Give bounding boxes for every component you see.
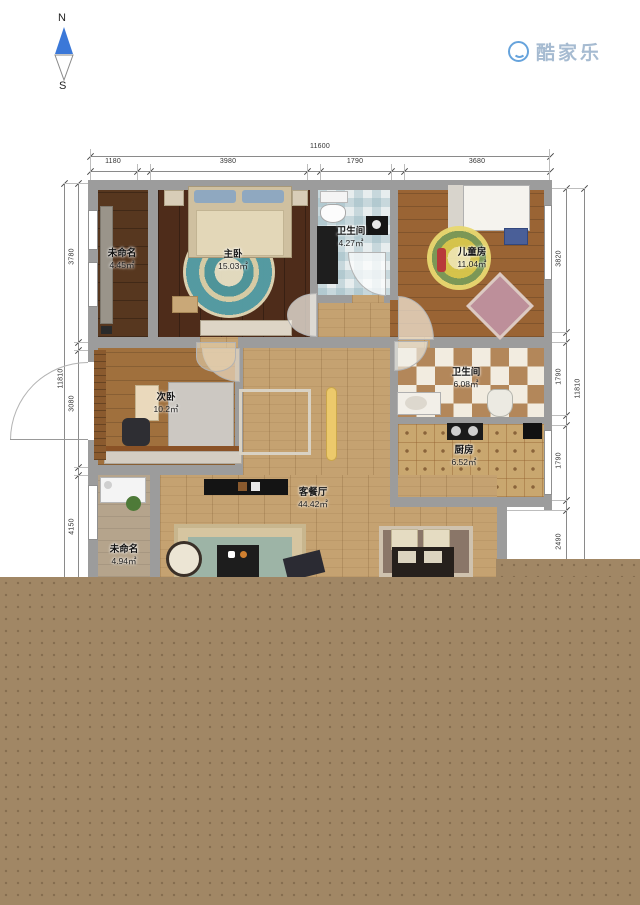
master-dresser <box>200 320 292 336</box>
kids-dresser <box>504 228 528 245</box>
place-setting <box>398 551 416 563</box>
dim-right-seg3: 1790 <box>556 439 563 483</box>
tv-decor <box>251 482 260 491</box>
toilet <box>487 389 513 417</box>
room-label-kitchen: 厨房 6.52㎡ <box>434 445 494 468</box>
corridor-cabinet <box>239 389 311 455</box>
armchair <box>166 541 202 577</box>
kujiale-logo-text: 酷家乐 <box>536 38 602 65</box>
compass-needle-icon <box>50 26 78 82</box>
kitchen-appliance <box>523 423 542 439</box>
master-stool <box>172 296 198 313</box>
wall-secondbed-bottom <box>88 465 243 475</box>
toilet <box>320 204 346 223</box>
nightstand <box>292 190 308 206</box>
room-label-bath-top: 卫生间 4.27㎡ <box>321 226 381 249</box>
dim-top-total: 11600 <box>298 143 342 150</box>
dim-top-seg1: 1180 <box>91 158 135 165</box>
bath-shelf <box>320 191 348 203</box>
place-setting <box>424 551 442 563</box>
appliance-knob <box>104 481 112 489</box>
table-item <box>228 551 235 558</box>
dim-line-right-total <box>584 188 585 559</box>
dim-right-seg2: 1790 <box>556 355 563 399</box>
bath1-door-opening <box>352 295 384 303</box>
entry-door-line <box>10 439 88 440</box>
shelf-item <box>101 326 112 334</box>
wall-middle-horizontal <box>88 337 552 348</box>
dim-line-top-total <box>90 156 550 157</box>
tv-decor <box>238 482 247 491</box>
nightstand <box>164 190 184 206</box>
window-left-1 <box>88 210 98 250</box>
room-label-unnamed-top: 未命名 4.45㎡ <box>92 248 152 271</box>
pillow <box>194 190 236 203</box>
dim-right-seg1: 3820 <box>556 237 563 281</box>
stove-burner <box>468 426 478 436</box>
kujiale-smile-icon <box>508 41 529 62</box>
dim-top-seg4: 3680 <box>455 158 499 165</box>
potted-plant <box>126 496 141 511</box>
hall-arc <box>196 342 236 372</box>
kujiale-logo: 酷家乐 <box>508 38 602 65</box>
dim-right-total: 11810 <box>575 367 582 411</box>
room-label-master: 主卧 15.03㎡ <box>203 249 263 272</box>
desk <box>104 451 242 464</box>
room-label-bath-mid: 卫生间 6.08㎡ <box>436 367 496 390</box>
window-right-2 <box>544 430 552 495</box>
hall-stub <box>318 297 390 337</box>
window-right-1 <box>544 205 552 280</box>
room-label-unnamed-bottom: 未命名 4.94㎡ <box>94 544 154 567</box>
compass-south-label: S <box>59 80 66 92</box>
coffee-table <box>217 545 259 577</box>
stove-burner <box>451 426 461 436</box>
dim-right-seg4: 2490 <box>556 520 563 564</box>
compass-north-label: N <box>58 12 66 24</box>
dim-top-seg3: 1790 <box>333 158 377 165</box>
sink-basin <box>405 396 427 410</box>
kids-bed-headboard <box>448 185 464 231</box>
wall-kitchen-bottom <box>390 497 552 507</box>
dim-line-right-segments <box>566 188 567 559</box>
entry-door-arc <box>10 362 88 440</box>
entry-door-leaf <box>94 350 106 460</box>
window-left-3 <box>88 485 98 540</box>
dim-left-seg1: 3780 <box>69 235 76 279</box>
wall-bath2-left <box>390 348 398 507</box>
dim-left-seg3: 4150 <box>69 505 76 549</box>
desk-chair <box>122 418 150 446</box>
room-label-second: 次卧 10.2㎡ <box>136 392 196 415</box>
room-label-living: 客餐厅 44.42㎡ <box>283 487 343 510</box>
dim-top-seg2: 3980 <box>206 158 250 165</box>
floor-texture-overlay-step <box>496 559 640 577</box>
floor-texture-overlay <box>0 577 640 905</box>
table-item <box>240 551 247 558</box>
kids-door-opening <box>390 300 398 337</box>
room-label-kids: 儿童房 11.04㎡ <box>442 247 502 270</box>
sliding-door-leaf <box>326 387 337 461</box>
floorplan-canvas: N S 酷家乐 11600 1180 3980 1790 3680 11810 … <box>0 0 640 905</box>
pillow <box>242 190 284 203</box>
